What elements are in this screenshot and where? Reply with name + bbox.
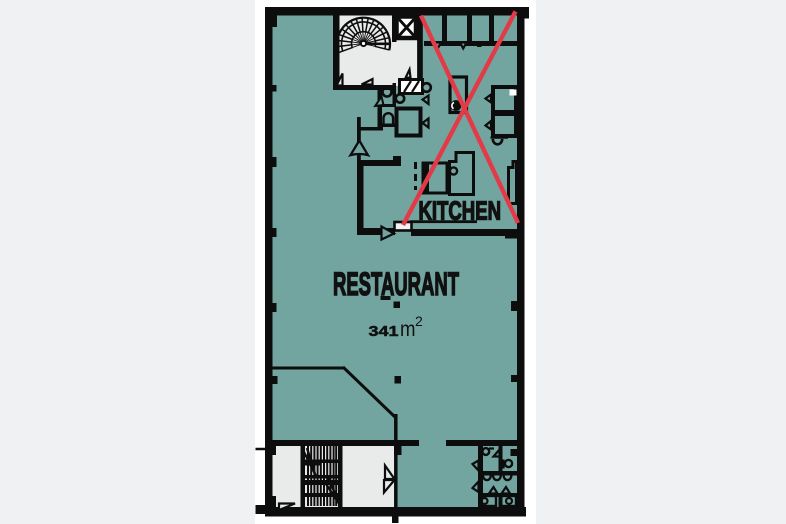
svg-text:m: m [400, 317, 416, 341]
svg-text:2: 2 [415, 313, 423, 329]
svg-text:RESTAURANT: RESTAURANT [333, 266, 459, 302]
svg-text:341: 341 [369, 323, 399, 340]
svg-text:KITCHEN: KITCHEN [419, 196, 502, 226]
